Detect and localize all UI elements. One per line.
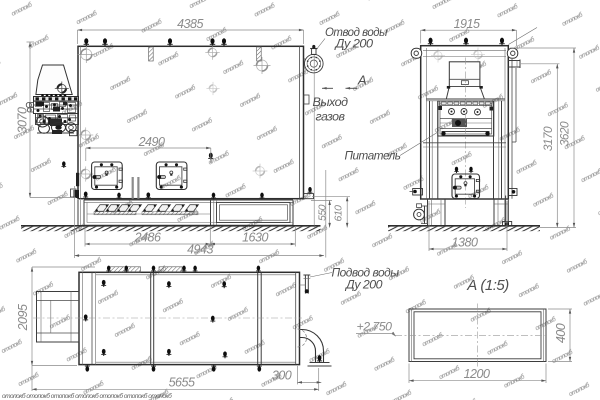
svg-text:610: 610	[332, 205, 344, 222]
svg-text:5655: 5655	[169, 376, 195, 390]
svg-text:2486: 2486	[134, 231, 161, 245]
svg-text:А: А	[357, 73, 366, 88]
svg-text:+2.750: +2.750	[357, 320, 393, 334]
svg-text:Ду 200: Ду 200	[333, 37, 373, 51]
svg-text:3620: 3620	[557, 121, 571, 146]
svg-text:1200: 1200	[464, 367, 490, 381]
svg-text:3170: 3170	[541, 126, 555, 151]
svg-text:Ду 200: Ду 200	[344, 278, 383, 292]
svg-text:А (1:5): А (1:5)	[466, 277, 509, 294]
svg-text:4385: 4385	[177, 17, 203, 31]
svg-text:4943: 4943	[187, 242, 213, 256]
svg-text:Питатель: Питатель	[345, 149, 401, 163]
svg-text:1380: 1380	[452, 236, 478, 250]
svg-text:300: 300	[272, 369, 292, 383]
svg-text:газов: газов	[316, 110, 346, 124]
svg-text:1630: 1630	[242, 231, 268, 245]
svg-text:1915: 1915	[454, 17, 480, 31]
svg-text:550: 550	[316, 204, 328, 221]
svg-text:2490: 2490	[138, 135, 165, 149]
svg-text:400: 400	[554, 323, 568, 343]
svg-text:отопокб отопокб отопокб отопок: отопокб отопокб отопокб отопокб отопокб …	[2, 392, 172, 400]
svg-text:2095: 2095	[16, 304, 30, 331]
svg-text:Выход: Выход	[313, 95, 349, 109]
svg-text:3070: 3070	[16, 107, 30, 133]
